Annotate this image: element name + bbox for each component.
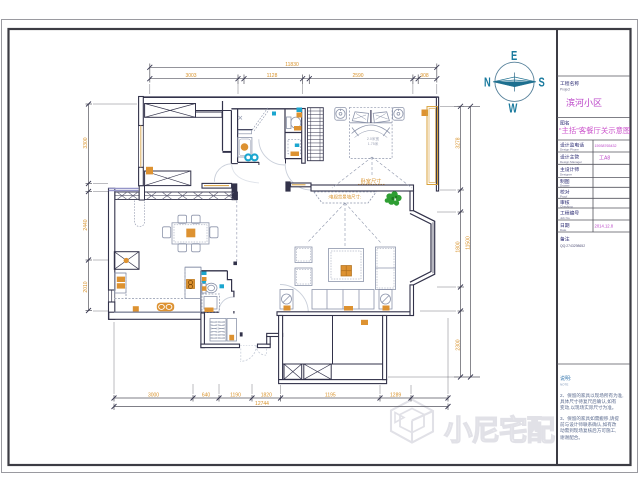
svg-text:11500: 11500 xyxy=(466,236,472,250)
svg-text:15938765432: 15938765432 xyxy=(595,144,617,148)
svg-text:1190: 1190 xyxy=(230,393,241,399)
svg-text:1820: 1820 xyxy=(261,393,272,399)
svg-text:Design Phone: Design Phone xyxy=(560,148,579,152)
svg-text:3003: 3003 xyxy=(185,73,196,79)
svg-text:1128: 1128 xyxy=(267,73,278,79)
svg-text:Project: Project xyxy=(560,88,570,92)
svg-text:E: E xyxy=(511,50,518,64)
svg-text:3、保留的家具如需搬移,请提: 3、保留的家具如需搬移,请提 xyxy=(560,415,619,422)
svg-text:2014.12.8: 2014.12.8 xyxy=(595,224,614,229)
svg-text:Date: Date xyxy=(560,228,567,232)
svg-text:1.75米: 1.75米 xyxy=(368,141,379,146)
svg-text:“主括”客餐厅关示意图: “主括”客餐厅关示意图 xyxy=(559,126,630,135)
svg-text:2010: 2010 xyxy=(83,281,89,292)
svg-text:2590: 2590 xyxy=(352,73,363,79)
svg-text:变动,以现场实际尺寸为准。: 变动,以现场实际尺寸为准。 xyxy=(560,404,616,411)
svg-text:小尼宅配: 小尼宅配 xyxy=(444,414,556,447)
svg-text::电视背景墙尺寸:: :电视背景墙尺寸: xyxy=(328,194,361,201)
svg-text:Checking: Checking xyxy=(560,204,573,208)
svg-text:2300: 2300 xyxy=(456,339,462,350)
svg-text:Drawer: Drawer xyxy=(560,184,570,188)
svg-text:11830: 11830 xyxy=(285,62,299,68)
svg-text:12744: 12744 xyxy=(255,401,269,407)
svg-text:前与设计师联系确认,如有改: 前与设计师联系确认,如有改 xyxy=(560,421,617,428)
svg-text:具体尺寸待复尺后确认,如有: 具体尺寸待复尺后确认,如有 xyxy=(560,398,617,405)
svg-text:1195: 1195 xyxy=(325,393,336,399)
svg-text:谢谢配合。: 谢谢配合。 xyxy=(560,434,583,441)
svg-text:说明:: 说明: xyxy=(560,375,571,382)
svg-text:Design Manager: Design Manager xyxy=(560,160,582,164)
svg-text:工A8: 工A8 xyxy=(599,156,610,162)
svg-text:QQ:2743298652: QQ:2743298652 xyxy=(560,244,585,248)
svg-text:Job No.: Job No. xyxy=(560,216,571,220)
svg-text:2440: 2440 xyxy=(83,219,89,230)
svg-text:W: W xyxy=(509,102,518,116)
svg-text:3278: 3278 xyxy=(456,137,462,148)
svg-text:2.0米宽: 2.0米宽 xyxy=(367,136,380,141)
svg-text:S: S xyxy=(539,76,546,90)
svg-text:备注: 备注 xyxy=(560,236,570,243)
svg-text:2、保留的家具以现场所有为准,: 2、保留的家具以现场所有为准, xyxy=(560,392,624,399)
svg-text:1289: 1289 xyxy=(390,393,401,399)
svg-text:动需到现场复核后方可施工,: 动需到现场复核后方可施工, xyxy=(560,427,616,434)
svg-text:Designer: Designer xyxy=(560,173,572,177)
svg-text:卧室尺寸: 卧室尺寸 xyxy=(361,177,382,185)
svg-text:3300: 3300 xyxy=(83,137,89,148)
svg-text:3000: 3000 xyxy=(148,393,159,399)
svg-text:Proof: Proof xyxy=(560,194,567,198)
svg-text:1800: 1800 xyxy=(456,241,462,252)
svg-text:NOTE: NOTE xyxy=(560,383,568,387)
svg-text:640: 640 xyxy=(202,393,211,399)
svg-text:N: N xyxy=(484,76,491,90)
svg-text:908: 908 xyxy=(420,73,429,79)
svg-text:滨河小区: 滨河小区 xyxy=(566,97,602,108)
svg-text:工程名称: 工程名称 xyxy=(560,80,579,87)
